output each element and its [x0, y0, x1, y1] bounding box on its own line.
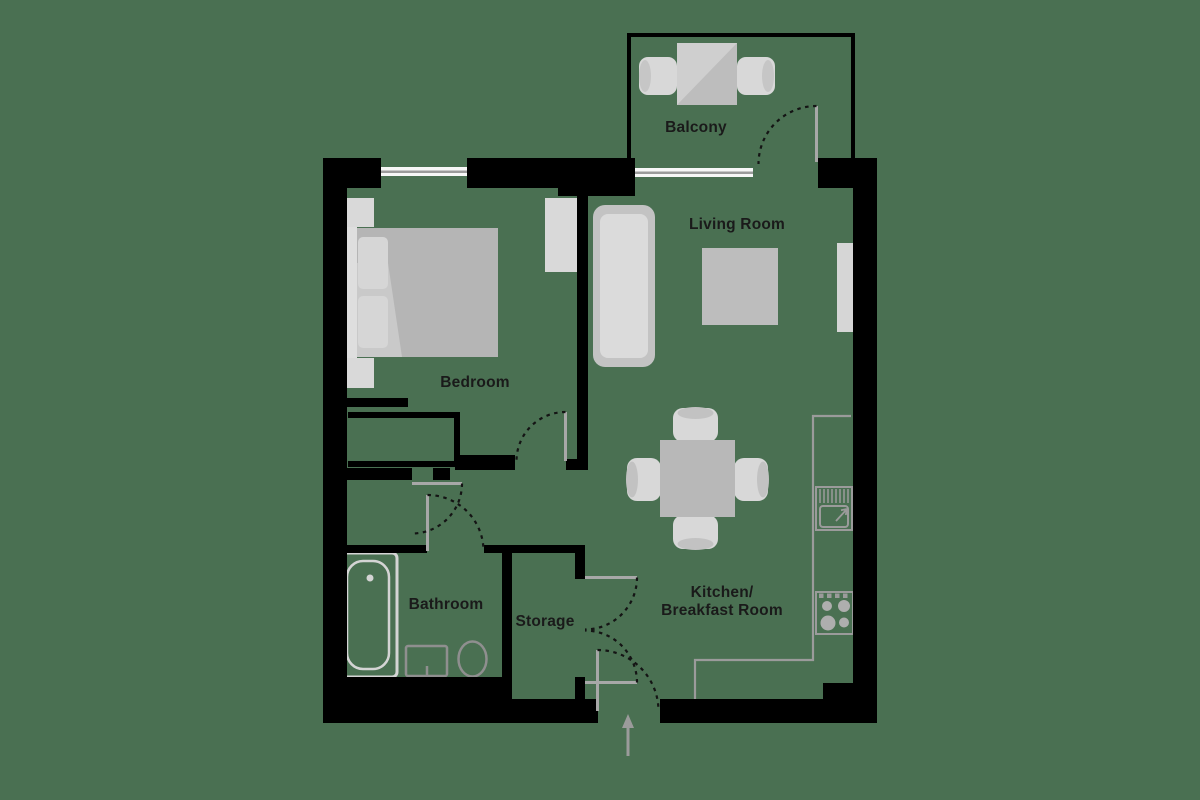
wall-hall-west — [347, 468, 412, 480]
balcony-window — [635, 168, 753, 177]
wall-bottom-corner — [823, 683, 877, 703]
balcony-chair-right-back — [762, 60, 774, 92]
wall-bottom-west — [323, 699, 598, 723]
bed-headboard — [347, 227, 357, 358]
hob-knob — [843, 594, 848, 599]
burner — [821, 616, 836, 631]
nightstand-bottom — [347, 358, 374, 388]
wall-storage-top — [512, 545, 585, 553]
balcony-wall-right — [851, 33, 855, 158]
bedroom-label: Bedroom — [440, 374, 509, 391]
fitted-closet-bottom — [348, 461, 460, 467]
sofa-cushions — [600, 214, 648, 358]
pillow-top — [358, 237, 388, 289]
tv-unit — [837, 243, 854, 332]
dining-chair-top-back — [678, 407, 714, 419]
wall-bedroom-living-partition — [577, 186, 588, 470]
wall-left — [323, 158, 347, 723]
wall-bathroom-bottom — [347, 677, 512, 699]
wall-top-middle — [467, 158, 635, 188]
hob-knob — [835, 594, 840, 599]
wall-storage-right-lower — [575, 677, 585, 700]
balcony-chair-left-back — [639, 60, 651, 92]
closet-front-bar — [347, 398, 408, 407]
bathtub-drain — [367, 575, 374, 582]
wall-right — [853, 158, 877, 723]
floor-plan: Balcony Living Room Bedroom Bathroom Sto… — [0, 0, 1200, 800]
wardrobe — [545, 198, 577, 272]
hob-knob — [827, 594, 832, 599]
dining-table — [660, 440, 735, 517]
balcony-wall-left — [627, 33, 631, 158]
kitchen-label-line2: Breakfast Room — [661, 602, 783, 619]
wall-storage-left — [502, 545, 512, 700]
dining-chair-bottom-back — [678, 538, 714, 550]
burner — [838, 600, 850, 612]
hob-knob — [819, 594, 824, 599]
kitchen-label-line1: Kitchen/ — [691, 584, 754, 601]
burner — [839, 618, 849, 628]
wall-top-west — [323, 158, 381, 188]
wall-top-lintel — [558, 186, 635, 196]
dining-chair-right-back — [757, 462, 769, 498]
balcony-wall-top — [627, 33, 855, 37]
living-room-label: Living Room — [689, 216, 785, 233]
pillow-bottom — [358, 296, 388, 348]
balcony-label: Balcony — [665, 119, 727, 136]
wall-storage-right-upper — [575, 553, 585, 579]
storage-label: Storage — [515, 613, 574, 630]
nightstand-top — [347, 198, 374, 227]
burner — [822, 601, 832, 611]
fitted-closet-right — [454, 412, 460, 467]
wall-hall-stub — [433, 468, 450, 480]
floor-background — [0, 0, 1200, 800]
wall-bathroom-top-west — [347, 545, 427, 553]
bathroom-label: Bathroom — [409, 596, 484, 613]
dining-chair-left-back — [626, 462, 638, 498]
wall-partition-foot — [566, 459, 588, 470]
fitted-closet-top — [348, 412, 460, 418]
bedroom-window — [381, 167, 467, 176]
coffee-table — [702, 248, 778, 325]
wall-bedroom-south — [455, 455, 515, 470]
